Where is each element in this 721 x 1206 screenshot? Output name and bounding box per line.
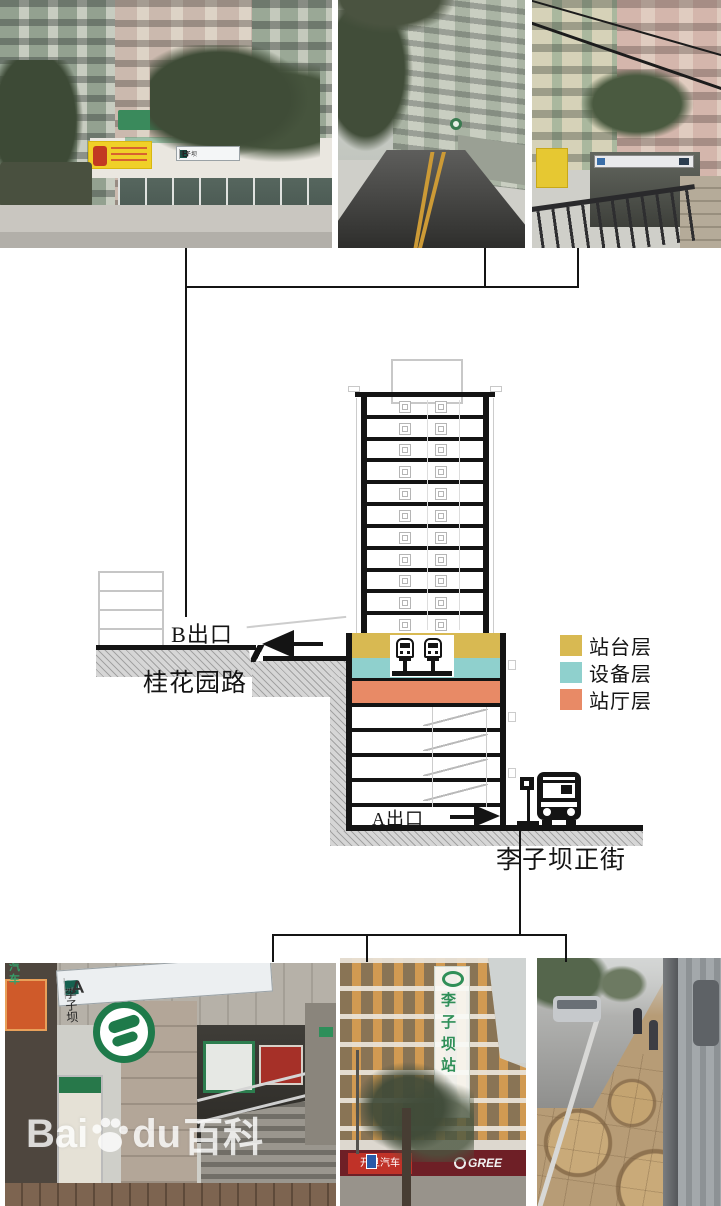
- connector-tick: [565, 934, 567, 962]
- photo-entrance-stairs: [532, 0, 721, 248]
- banner-figure: [93, 146, 107, 166]
- fixture-glyph: [435, 401, 447, 413]
- interior-wall-line: [459, 400, 460, 630]
- train-light: [435, 651, 438, 654]
- connector-line-top: [185, 286, 579, 288]
- parapet: [348, 386, 360, 392]
- fixture-glyph: [399, 619, 411, 631]
- balcony-stub: [508, 712, 516, 722]
- tree-canopy: [572, 70, 702, 145]
- legend-item-hall: 站厅层: [560, 689, 652, 710]
- road-label-liziba-street: 李子坝正街: [496, 840, 620, 876]
- fixture-glyph: [399, 401, 411, 413]
- baidu-baike-watermark: Bai du 百科: [26, 1108, 263, 1160]
- tower-floor: [367, 528, 483, 550]
- watermark-brand: 百科: [183, 1105, 263, 1163]
- crt-logo-icon: [93, 1001, 155, 1063]
- equipment-color-swatch: [560, 662, 582, 683]
- crt-logo-icon: [442, 971, 464, 987]
- legend: 站台层 设备层 站厅层: [560, 635, 652, 710]
- ground-hatch: [330, 677, 346, 831]
- yellow-banner: [88, 141, 152, 169]
- tower-floor: [367, 593, 483, 615]
- fixture-glyph: [435, 597, 447, 609]
- exit-sign: [319, 1027, 333, 1037]
- photo-bus-stop-sidewalk: [537, 958, 721, 1206]
- stone-wall: [305, 1003, 336, 1145]
- fixture-glyph: [399, 423, 411, 435]
- road-sign: [450, 118, 462, 130]
- tower-floor: [367, 419, 483, 441]
- notice-board: [203, 1041, 255, 1093]
- arrow-tail: [450, 815, 476, 819]
- connector-line-exit-b: [185, 248, 187, 617]
- platform-color-swatch: [560, 635, 582, 656]
- station-wall: [346, 633, 352, 831]
- station-floor: [352, 707, 500, 732]
- fixture-glyph: [399, 510, 411, 522]
- balcony-line: [356, 398, 357, 633]
- tower-floor: [367, 550, 483, 572]
- sidewalk: [0, 232, 332, 248]
- connector-tick: [577, 248, 579, 288]
- side-sign-text: 汽车: [9, 963, 23, 986]
- station-floor: [352, 782, 500, 807]
- legend-item-equipment: 设备层: [560, 662, 652, 683]
- pedestrian: [633, 1008, 642, 1034]
- bus-stop-pole: [527, 786, 530, 824]
- photo-exit-b-entrance: 2 李子坝 B: [0, 0, 332, 248]
- legend-label: 设备层: [589, 658, 652, 687]
- tower-floor: [367, 441, 483, 463]
- connector-tick: [366, 934, 368, 962]
- logo-swoosh: [107, 1013, 141, 1034]
- train-windshield: [428, 643, 438, 648]
- tower-floor: [367, 572, 483, 594]
- fixture-glyph: [399, 554, 411, 566]
- tower-floor: [367, 397, 483, 419]
- metro-logo-icon: [597, 158, 605, 165]
- residential-tower-section: [355, 392, 495, 633]
- tower-floor: [367, 615, 483, 633]
- station-floor: [352, 757, 500, 782]
- train-light: [428, 651, 431, 654]
- exit-a-level: A出口: [352, 807, 500, 825]
- watermark-prefix: Bai: [26, 1112, 88, 1157]
- station-entrance-sign: [594, 155, 694, 168]
- photo-station-building: 李子坝站 开旦汽车 GREE: [340, 958, 526, 1206]
- legend-item-platform: 站台层: [560, 635, 652, 656]
- sidewalk: [340, 1176, 526, 1206]
- monorail-train-icon: [424, 638, 442, 658]
- pedestrian: [649, 1020, 658, 1050]
- interior-wall-line: [427, 400, 428, 630]
- arrow-right-icon: [450, 807, 500, 825]
- track-slab: [392, 671, 452, 676]
- fixture-glyph: [399, 597, 411, 609]
- van-windows: [557, 1000, 597, 1009]
- tower-floor: [367, 506, 483, 528]
- parapet: [490, 386, 502, 392]
- exit-letter: B: [179, 149, 189, 159]
- fixture-glyph: [399, 575, 411, 587]
- train-light: [400, 651, 403, 654]
- paw-icon: [90, 1113, 130, 1155]
- legend-label: 站台层: [589, 631, 652, 660]
- banner-text-lines: [111, 147, 147, 165]
- station-entrance-sign: 2 李子坝 B: [176, 146, 240, 161]
- hall-color-swatch: [560, 689, 582, 710]
- hall-level-band: [352, 681, 500, 703]
- exit-b-label: B出口: [150, 617, 254, 649]
- station-floor: [352, 732, 500, 757]
- fixture-glyph: [435, 554, 447, 566]
- legend-label: 站厅层: [589, 685, 652, 714]
- fixture-glyph: [399, 488, 411, 500]
- fixture-glyph: [435, 532, 447, 544]
- watermark-mid: du: [132, 1112, 181, 1157]
- floor-line: [100, 609, 162, 611]
- station-section: A出口: [346, 633, 506, 831]
- station-wall: [500, 633, 506, 831]
- balcony-stub: [508, 660, 516, 670]
- tree-trunk: [402, 1108, 411, 1206]
- tree-canopy: [592, 962, 652, 1006]
- connector-tick: [272, 934, 274, 962]
- connector-line-bottom: [272, 934, 567, 936]
- liziba-station-infographic: 2 李子坝 B: [0, 0, 721, 1206]
- tower-floor: [367, 484, 483, 506]
- tower-floors: [367, 397, 483, 633]
- balcony-line: [493, 398, 494, 633]
- track-beam: [427, 658, 439, 671]
- brand-sign: GREE: [468, 1154, 522, 1172]
- van: [553, 996, 601, 1022]
- fixture-glyph: [435, 488, 447, 500]
- tower-wall: [483, 392, 489, 633]
- fixture-glyph: [399, 532, 411, 544]
- shop-sign: [5, 979, 47, 1031]
- fixture-glyph: [435, 575, 447, 587]
- fixture-glyph: [435, 619, 447, 631]
- arrow-tail: [293, 642, 323, 646]
- arrow-head: [262, 630, 294, 658]
- fixture-glyph: [435, 444, 447, 456]
- tree-canopy: [354, 1062, 474, 1162]
- train-light: [407, 651, 410, 654]
- ground-line-liziba-street: [346, 825, 643, 831]
- brick-pavement: [5, 1183, 336, 1206]
- road-label-guihuayuan: 桂花园路: [140, 663, 250, 699]
- shelter-pole: [663, 958, 678, 1206]
- exit-letter: A: [64, 976, 85, 998]
- station-lower-floors: [352, 707, 500, 807]
- balcony-stub: [508, 768, 516, 778]
- monorail-train-icon: [396, 638, 414, 658]
- arrow-head: [474, 805, 500, 827]
- photo-exit-a-entrance: 汽车 2 号线 李子坝 Liziba A: [5, 963, 336, 1206]
- planter-hedge: [0, 162, 92, 208]
- fixture-glyph: [435, 510, 447, 522]
- floor-line: [100, 590, 162, 592]
- fixture-glyph: [399, 444, 411, 456]
- fixture-glyph: [435, 466, 447, 478]
- photo-street-view: [338, 0, 525, 248]
- yellow-banner: [536, 148, 568, 188]
- connector-tick: [484, 248, 486, 288]
- exit-marker: [679, 158, 689, 165]
- lightbox-header: [59, 1077, 101, 1093]
- fixture-glyph: [435, 423, 447, 435]
- track-beam: [399, 658, 411, 671]
- fixture-glyph: [399, 466, 411, 478]
- tree-branch: [338, 0, 468, 40]
- arrow-left-icon: [262, 630, 324, 660]
- parked-car: [693, 980, 719, 1046]
- tower-floor: [367, 462, 483, 484]
- train-windshield: [400, 643, 410, 648]
